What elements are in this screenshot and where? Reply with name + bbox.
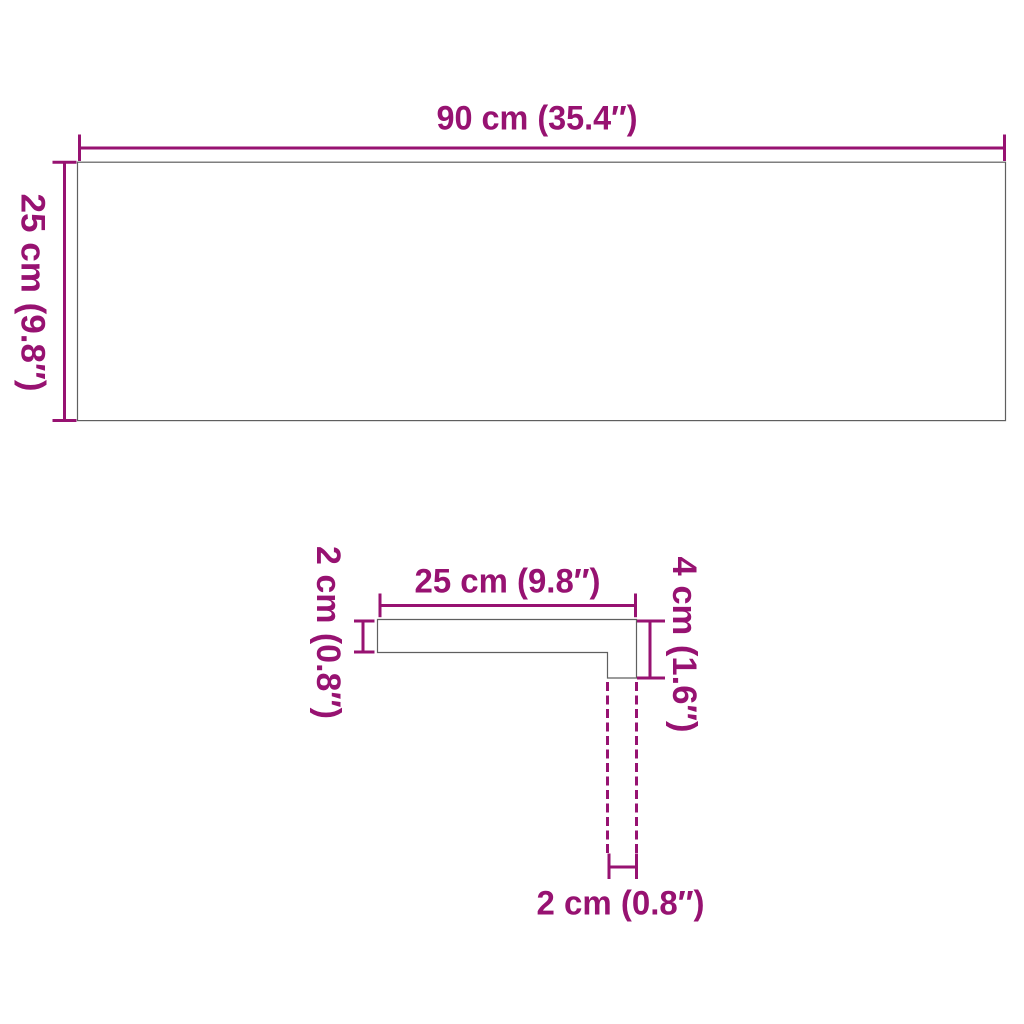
svg-text:25 cm (9.8″): 25 cm (9.8″): [415, 563, 601, 601]
svg-text:25 cm (9.8″): 25 cm (9.8″): [14, 194, 52, 392]
svg-text:2 cm (0.8″): 2 cm (0.8″): [309, 546, 347, 719]
svg-text:90 cm (35.4″): 90 cm (35.4″): [437, 100, 638, 138]
svg-text:4 cm (1.6″): 4 cm (1.6″): [665, 557, 703, 733]
svg-text:2 cm (0.8″): 2 cm (0.8″): [537, 885, 705, 923]
